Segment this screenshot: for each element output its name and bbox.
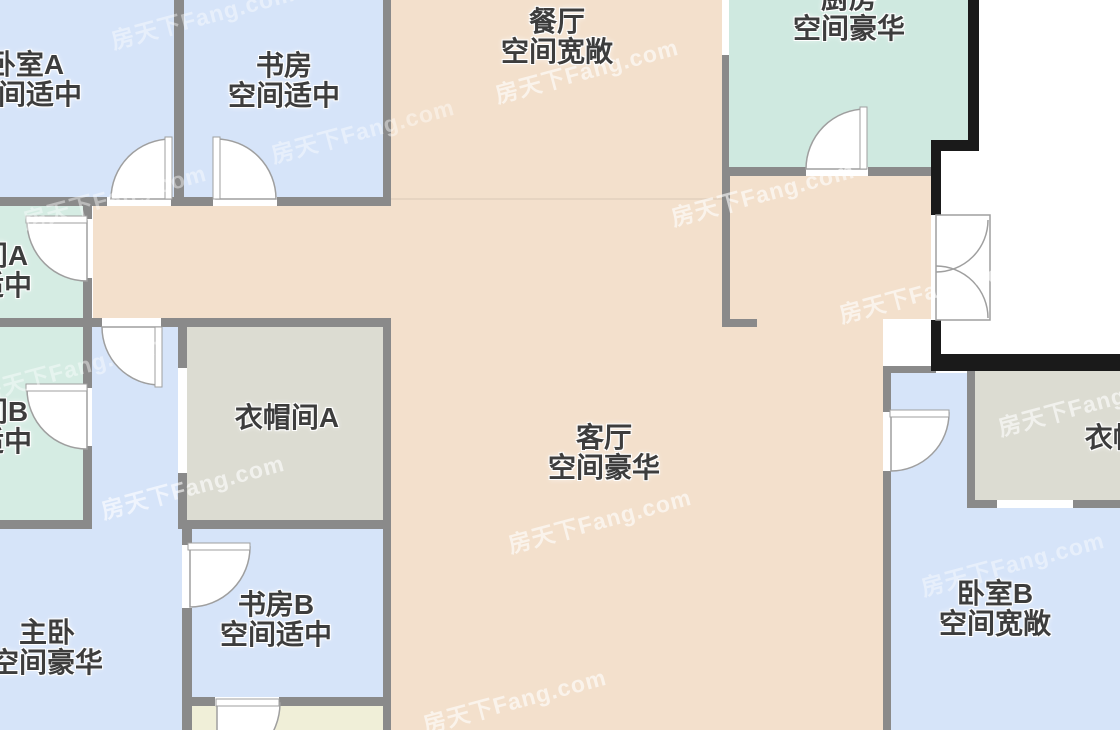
balcony-door-arc-top	[936, 220, 988, 272]
wall-west-column-right	[383, 319, 391, 730]
room-size-note: 空间豪华	[548, 453, 660, 483]
wall-study-b-bottom-2	[279, 697, 391, 706]
zone-divider-line	[391, 198, 722, 200]
exterior-wall-east-upper	[931, 140, 941, 215]
threshold-master-corridor	[102, 318, 161, 327]
room-label-cloakroom-a: 衣帽间A	[235, 403, 339, 433]
wall-cloakroom-a-bottom	[178, 520, 391, 529]
room-name: 卫生间A	[0, 241, 32, 271]
wall-kitchen-bottom-1	[722, 167, 806, 176]
room-fill-hallway	[93, 206, 391, 318]
room-name: 卧室A	[0, 50, 82, 80]
threshold-cream-room	[215, 697, 279, 706]
balcony-double-door-frame	[936, 215, 990, 320]
room-name: 衣帽间B	[1085, 423, 1120, 453]
threshold-bathroom-b	[83, 388, 92, 446]
room-size-note: 空间适中	[220, 620, 332, 650]
room-name: 书房B	[220, 590, 332, 620]
wall-cloakroom-b-bottom-2	[1073, 500, 1120, 508]
wall-cloakroom-b-left	[967, 371, 975, 508]
room-name: 衣帽间A	[235, 403, 339, 433]
threshold-kitchen-top	[722, 0, 729, 55]
threshold-study-b	[182, 545, 192, 608]
balcony-door-arc-bottom	[936, 266, 988, 318]
exterior-wall-east-horizontal	[931, 354, 1120, 371]
threshold-kitchen	[806, 167, 868, 176]
threshold-cloakroom-b	[997, 500, 1073, 508]
wall-kitchen-left	[722, 55, 729, 167]
wall-dining-stub	[722, 319, 757, 327]
room-label-master-bedroom: 主卧 空间豪华	[0, 618, 103, 678]
room-size-note: 空间豪华	[793, 14, 905, 44]
wall-bathroom-b-right-1	[83, 327, 92, 388]
wall-hall-bottom-2	[161, 318, 391, 327]
room-label-kitchen: 厨房 空间豪华	[793, 0, 905, 44]
wall-study-b-bottom-1	[182, 697, 215, 706]
room-fill-kitchen-lower	[729, 145, 931, 167]
room-name: 卫生间B	[0, 397, 32, 427]
room-name: 卧室B	[939, 579, 1051, 609]
room-label-bathroom-a: 卫生间A 空间适中	[0, 241, 32, 301]
room-fill-master-corridor	[92, 327, 178, 529]
room-label-study: 书房 空间适中	[228, 51, 340, 111]
threshold-bathroom-a	[83, 219, 92, 278]
wall-bedroom-b-left-1	[883, 366, 891, 412]
wall-bedrooms-bottom-3	[277, 197, 391, 206]
room-fill-dining-east	[730, 176, 931, 319]
exterior-wall-northeast-vertical	[968, 0, 979, 151]
floorplan: 房天下Fang.com 房天下Fang.com 房天下Fang.com 房天下F…	[0, 0, 1120, 730]
room-name: 餐厅	[501, 7, 613, 37]
wall-dining-living-divider	[722, 176, 730, 319]
wall-bedrooms-bottom-2	[171, 197, 213, 206]
threshold-study	[213, 197, 277, 206]
room-size-note: 空间豪华	[0, 648, 103, 678]
wall-hall-bottom-1	[0, 318, 102, 327]
room-name: 主卧	[0, 618, 103, 648]
room-name: 书房	[228, 51, 340, 81]
wall-master-right-1	[182, 529, 192, 545]
wall-bedroom-a-study-divider	[174, 0, 184, 197]
room-fill-living	[391, 319, 883, 730]
room-fill-cream-room	[191, 705, 383, 730]
room-size-note: 空间适中	[0, 427, 32, 457]
room-label-study-b: 书房B 空间适中	[220, 590, 332, 650]
wall-study-right	[383, 0, 391, 197]
room-size-note: 空间宽敞	[939, 609, 1051, 639]
room-label-bedroom-a: 卧室A 空间适中	[0, 50, 82, 110]
room-size-note: 空间宽敞	[501, 37, 613, 67]
wall-bathroom-a-right-2	[83, 278, 92, 318]
wall-kitchen-bottom-2	[868, 167, 931, 176]
wall-master-right-2	[182, 608, 192, 730]
wall-bathroom-b-right-2	[83, 446, 92, 520]
room-label-dining: 餐厅 空间宽敞	[501, 7, 613, 67]
wall-bedroom-b-left-2	[883, 471, 891, 730]
threshold-cloakroom-a	[178, 368, 187, 473]
room-name: 厨房	[793, 0, 905, 14]
room-label-living: 客厅 空间豪华	[548, 423, 660, 483]
room-label-bathroom-b: 卫生间B 空间适中	[0, 397, 32, 457]
wall-bathroom-a-right-1	[83, 205, 92, 219]
wall-cloakroom-a-left-2	[178, 473, 187, 520]
room-label-cloakroom-b: 衣帽间B	[1085, 423, 1120, 453]
wall-cloakroom-a-left-1	[178, 327, 187, 368]
room-size-note: 空间适中	[0, 271, 32, 301]
threshold-bedroom-a	[107, 197, 171, 206]
room-label-bedroom-b: 卧室B 空间宽敞	[939, 579, 1051, 639]
wall-bathroom-b-bottom	[0, 520, 92, 529]
threshold-bedroom-b	[883, 412, 891, 471]
room-size-note: 空间适中	[0, 80, 82, 110]
wall-cloakroom-b-bottom-1	[967, 500, 997, 508]
room-size-note: 空间适中	[228, 81, 340, 111]
room-name: 客厅	[548, 423, 660, 453]
